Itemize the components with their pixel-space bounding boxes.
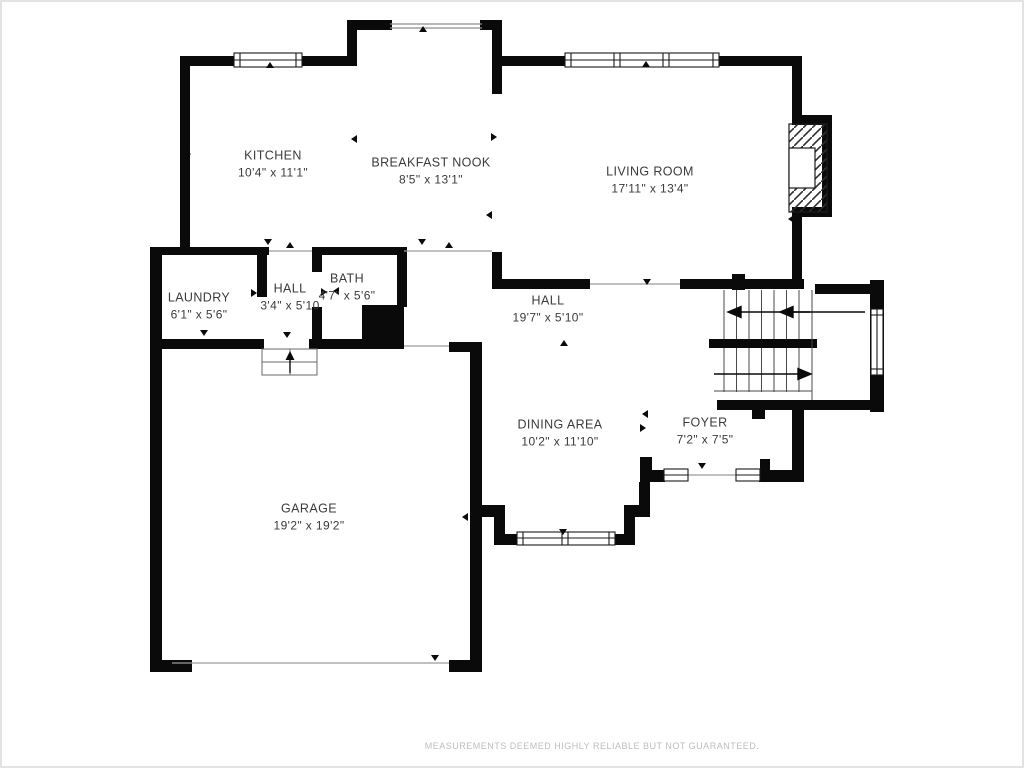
floor-plan: MEASUREMENTS DEEMED HIGHLY RELIABLE BUT … <box>0 0 1024 768</box>
opening-lines <box>172 251 737 663</box>
room-dims: 3'4" x 5'10 <box>260 297 319 314</box>
window-sidelight-right <box>736 469 760 481</box>
floor-plan-drawing <box>2 2 1024 768</box>
room-name: BREAKFAST NOOK <box>371 155 490 172</box>
room-dims: 8'5" x 13'1" <box>371 171 490 188</box>
room-name: LIVING ROOM <box>606 164 694 181</box>
window-sidelight-left <box>664 469 688 481</box>
room-name: GARAGE <box>273 501 344 518</box>
room-label: GARAGE 19'2" x 19'2" <box>273 501 344 534</box>
window-stair-landing <box>871 309 883 375</box>
room-dims: 6'1" x 5'6" <box>168 306 230 323</box>
garage-steps <box>262 349 317 375</box>
window-dining-bay <box>517 532 615 545</box>
room-label: FOYER 7'2" x 7'5" <box>677 415 734 448</box>
window-kitchen <box>234 53 302 67</box>
room-label: HALL 19'7" x 5'10" <box>512 293 583 326</box>
room-name: BATH <box>319 271 376 288</box>
room-dims: 17'11" x 13'4" <box>606 180 694 197</box>
room-name: HALL <box>260 281 319 298</box>
room-name: HALL <box>512 293 583 310</box>
room-label: LIVING ROOM 17'11" x 13'4" <box>606 164 694 197</box>
room-name: LAUNDRY <box>168 290 230 307</box>
room-dims: 10'2" x 11'10" <box>518 433 603 450</box>
room-name: KITCHEN <box>238 148 308 165</box>
room-label: HALL 3'4" x 5'10 <box>260 281 319 314</box>
room-name: DINING AREA <box>518 417 603 434</box>
room-dims: 10'4" x 11'1" <box>238 164 308 181</box>
room-dims: 19'2" x 19'2" <box>273 517 344 534</box>
room-dims: 4'7" x 5'6" <box>319 287 376 304</box>
room-label: KITCHEN 10'4" x 11'1" <box>238 148 308 181</box>
room-dims: 7'2" x 7'5" <box>677 431 734 448</box>
room-name: FOYER <box>677 415 734 432</box>
room-label: LAUNDRY 6'1" x 5'6" <box>168 290 230 323</box>
window-living <box>565 53 719 67</box>
disclaimer-text: MEASUREMENTS DEEMED HIGHLY RELIABLE BUT … <box>425 741 759 751</box>
fireplace-icon <box>789 124 827 212</box>
room-label: BREAKFAST NOOK 8'5" x 13'1" <box>371 155 490 188</box>
room-dims: 19'7" x 5'10" <box>512 309 583 326</box>
walls-layer <box>150 20 884 672</box>
room-label: BATH 4'7" x 5'6" <box>319 271 376 304</box>
room-label: DINING AREA 10'2" x 11'10" <box>518 417 603 450</box>
nook-slider-door <box>390 24 482 28</box>
